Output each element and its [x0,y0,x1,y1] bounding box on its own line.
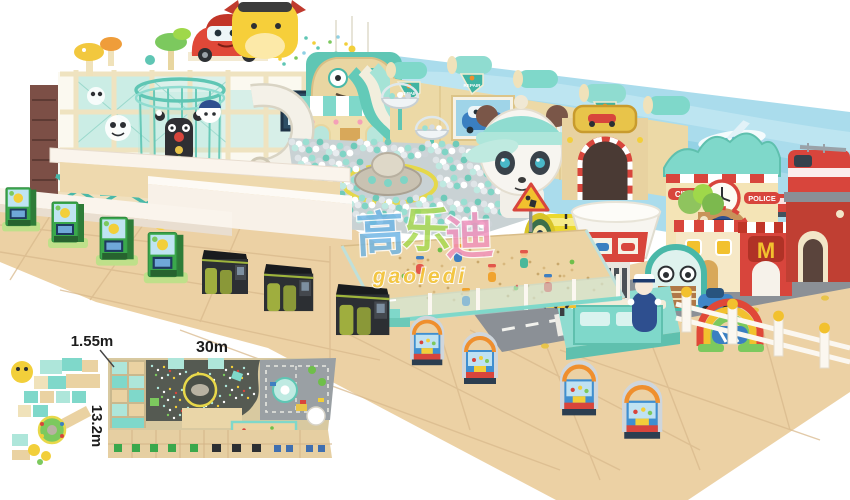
upper-level-plan [11,358,100,465]
kiddie-machine [96,217,138,265]
plan-road-zone [260,358,336,425]
kiddie-machine [144,233,188,284]
m-shop: M [738,222,794,296]
m-shop-label: M [757,238,775,263]
dim-platform-height: 1.55m [71,333,114,350]
watermark-char-1: 高 [355,208,406,263]
kiddie-machine [48,202,88,248]
racing-machine [264,264,313,311]
racing-machine [336,284,389,335]
plan-column [307,407,325,425]
watermark-latin: gaoledi [372,265,468,288]
plan-left-strip [110,360,146,428]
racing-machine [202,250,248,294]
dark-cabinet [30,85,58,205]
kiddie-machine [2,188,40,232]
arch-gate [562,106,648,200]
repair-sign-label: REPAIR [463,83,481,88]
police-label: POLICE [748,194,776,203]
playground-render: REPAIR REPAIR REPAIR [0,0,850,500]
dim-width: 30m [196,339,228,356]
fire-station [784,192,850,282]
police-face-decal [199,100,221,123]
main-floor-plan [108,358,336,458]
watermark-char-3: 迪 [445,210,495,265]
dim-depth: 13.2m [88,405,105,448]
monster-head-topper [224,0,306,59]
plan-apron [108,430,332,458]
plan-carousel [39,417,65,443]
tree-umbrella-decor [155,28,191,70]
fire-truck [788,143,850,200]
